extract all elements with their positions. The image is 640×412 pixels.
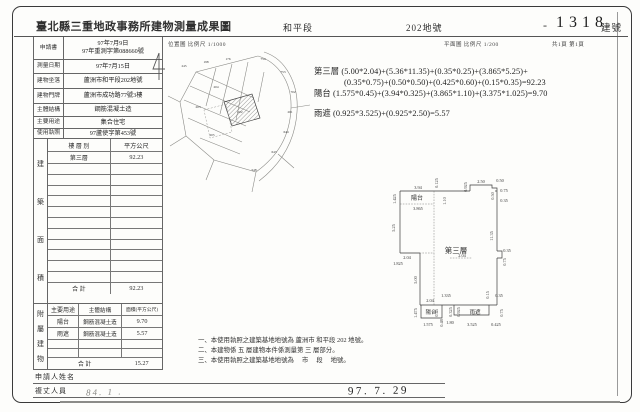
total-area: 92.23: [111, 283, 162, 294]
attached-section: 附屬 建物 主要用途 主體結構 面積(平方公尺) 陽台 鋼筋混凝土造 9.70 …: [34, 303, 162, 369]
handwritten-note: 84. 1 .: [86, 386, 123, 397]
dimension-label: 0.75: [499, 309, 504, 317]
parcel-number: 176: [225, 57, 230, 61]
form-row-location: 建物坐落 蘆洲市和平段202地號: [34, 73, 162, 88]
parcel-number: 702: [290, 90, 295, 94]
room-label: 雨遮: [469, 308, 481, 316]
row-label: 建物坐落: [34, 74, 64, 88]
empty-row: [48, 340, 162, 349]
area-table: 樓 層 別 平方公尺 第三層 92.23 合 計: [47, 139, 162, 303]
form-row-permit: 使用執照 97蘆使字第453號: [34, 128, 162, 138]
dimension-label: 1.335: [441, 293, 451, 298]
form-table: 申請書 97年7月9日 97年重測字第088660號 測量日期 97年7月15日…: [33, 37, 163, 370]
attached-total-row: 合 計 15.27: [48, 358, 162, 369]
parcel-number: 202: [237, 110, 242, 114]
empty-row: [48, 218, 162, 229]
empty-row: [48, 349, 162, 358]
parcel-number: 201: [287, 110, 292, 114]
structure-header: 主體結構: [79, 304, 122, 315]
site-map: 2451981767547537022016446435482042032022…: [166, 50, 318, 200]
page-title: 臺北縣三重地政事務所建物測量成果圖: [36, 18, 232, 34]
dimension-label: 0.50: [490, 192, 495, 200]
formula-canopy: 雨遮 (0.925*3.525)+(0.925*2.50)=5.57: [314, 108, 630, 119]
scanned-survey-document: 臺北縣三重地政事務所建物測量成果圖 和平段 202地號 - 1318 建號 位置…: [0, 0, 640, 412]
applicant-label: 申請人姓名: [35, 373, 75, 381]
note-line: 一、本使用執照之建築基地地號為 蘆洲市 和平段 202 地號。: [198, 336, 454, 346]
dimension-label: 0.75: [502, 258, 507, 266]
empty-row: [48, 261, 162, 272]
row-value: 鋼筋混凝土造: [64, 104, 162, 116]
attached-use: 雨遮: [48, 328, 79, 339]
building-area-section: 建築 面積 樓 層 別 平方公尺 第三層 92.23: [34, 138, 162, 303]
note-line: 二、本建物係 五 層建物本件係測量第 三 層部分。: [198, 346, 454, 356]
plan-scale: 平面圖 比例尺 1/200: [444, 40, 499, 48]
dimension-label: 0.425: [491, 322, 501, 327]
dimension-label: 0.75: [500, 188, 508, 193]
empty-row: [48, 250, 162, 261]
side-caption-building-area: 建築 面積: [34, 139, 47, 303]
application-date: 97年7月9日: [98, 40, 129, 48]
dimension-label: 0.45: [434, 309, 439, 317]
dimension-label: 0.125: [434, 178, 439, 188]
dimension-label: 0.925: [463, 182, 468, 192]
formula-balcony: 陽台 (1.575*0.45)+(3.94*0.325)+(3.865*1.10…: [314, 88, 630, 99]
attached-structure: 鋼筋混凝土造: [79, 316, 122, 327]
note-line: 三、本使用執照之建築基地地號為 市 段 地號。: [198, 356, 454, 366]
form-row-address: 建物門牌 蘆洲市成功路77號3樓: [34, 88, 162, 103]
notes: 一、本使用執照之建築基地地號為 蘆洲市 和平段 202 地號。 二、本建物係 五…: [198, 336, 454, 366]
dimension-label: 3.865: [413, 206, 423, 211]
form-row-application: 申請書 97年7月9日 97年重測字第088660號: [34, 37, 162, 59]
empty-row: [48, 196, 162, 207]
form-row-survey-date: 測量日期 97年7月15日: [34, 59, 162, 73]
surveyor-label: 複丈人員: [35, 387, 67, 395]
row-value: 97蘆使字第453號: [64, 129, 162, 138]
row-label: 主要用途: [34, 117, 64, 128]
building-number-label: 建號: [601, 20, 622, 34]
dimension-label: 2.50: [477, 179, 485, 184]
empty-row: [48, 229, 162, 240]
row-value: 蘆洲市成功路77號3樓: [64, 89, 162, 103]
dimension-label: 0.35: [495, 293, 503, 298]
row-value: 集合住宅: [64, 117, 162, 128]
empty-row: [48, 175, 162, 186]
main-outline: [420, 185, 502, 305]
formula-floor-line2: (0.35*0.75)+(0.50*0.50)+(0.425*0.60)+(0.…: [314, 77, 630, 88]
empty-row: [48, 240, 162, 251]
location-map-scale: 位置圖 比例尺 1/1000: [168, 40, 226, 48]
parcel-number: 204: [213, 85, 218, 89]
area-column-header: 平方公尺: [111, 139, 162, 151]
area-header-row: 樓 層 別 平方公尺: [48, 139, 162, 152]
row-label: 申請書: [34, 37, 64, 59]
parcel-number: 754: [260, 57, 265, 61]
attached-structure: 鋼筋混凝土造: [79, 328, 122, 339]
page-count: 共1頁 第1頁: [552, 40, 584, 48]
dimension-label: 1.80: [446, 320, 454, 325]
attached-row-canopy: 雨遮 鋼筋混凝土造 5.57: [48, 328, 162, 340]
building-number-dash: -: [543, 18, 547, 33]
floor-column-header: 樓 層 別: [48, 139, 111, 151]
row-label: 測量日期: [34, 60, 64, 73]
empty-row: [48, 164, 162, 175]
attached-area: 5.57: [122, 328, 162, 339]
floor-area: 92.23: [111, 152, 162, 163]
dimension-label: 0.35: [500, 198, 508, 203]
attached-total-label: 合 計: [48, 358, 121, 369]
form-row-structure: 主體結構 鋼筋混凝土造: [34, 103, 162, 116]
dimension-label: 3.525: [467, 322, 477, 327]
application-number: 97年重測字第088660號: [82, 48, 144, 56]
row-value: 蘆洲市和平段202地號: [64, 74, 162, 88]
row-label: 主體結構: [34, 104, 64, 116]
dimension-label: 2.04: [458, 253, 466, 258]
dimension-label: 3.94: [414, 185, 422, 190]
room-label: 陽台: [411, 194, 423, 202]
floor-plan: 3.941.425陽台3.8655.250.1251.100.9252.500.…: [390, 168, 520, 340]
dimension-label: 0.15: [485, 291, 490, 299]
dimension-label: 5.25: [391, 224, 396, 232]
empty-row: [48, 186, 162, 197]
floor-name: 第三層: [48, 152, 111, 163]
attached-area: 9.70: [122, 316, 162, 327]
row-value: 97年7月15日: [64, 60, 162, 73]
date-stamp: 97. 7. 29: [348, 384, 409, 397]
attached-total: 15.27: [121, 358, 162, 369]
use-header: 主要用途: [48, 304, 79, 315]
applicant-row: 申請人姓名: [33, 369, 445, 384]
dimension-label: 1.475: [413, 308, 418, 318]
dimension-label: 1.10: [442, 197, 447, 205]
dimension-label: 11.35: [489, 231, 494, 241]
parcel-number: 198: [203, 60, 208, 64]
attached-row-balcony: 陽台 鋼筋混凝土造 9.70: [48, 316, 162, 328]
page-bottom-shadow: [60, 401, 620, 403]
floor-row: 第三層 92.23: [48, 152, 162, 164]
dimension-label: 0.48: [439, 319, 444, 327]
parcel-number: 643: [271, 150, 276, 154]
parcel-number: 203: [195, 105, 200, 109]
dimension-label: 0.35: [503, 248, 511, 253]
attached-header-row: 主要用途 主體結構 面積(平方公尺): [48, 304, 162, 316]
row-value: 97年7月9日 97年重測字第088660號: [64, 37, 162, 59]
attached-use: 陽台: [48, 316, 79, 327]
parcel-number: 753: [280, 70, 285, 74]
area-formulas: 第三層 (5.00*2.04)+(5.36*11.35)+(0.35*0.25)…: [314, 66, 630, 119]
dimension-label: 2.04: [403, 255, 411, 260]
dimension-label: 0.50: [496, 178, 504, 183]
parcel-number: 245: [181, 64, 186, 68]
parcel-number: 202地號: [406, 21, 443, 34]
side-caption-attached: 附屬 建物: [34, 304, 47, 369]
attached-area-header: 面積(平方公尺): [122, 304, 162, 315]
dimension-label: 1.425: [392, 194, 397, 204]
form-row-use: 主要用途 集合住宅: [34, 116, 162, 128]
dimension-label: 0.325: [448, 307, 453, 317]
street-line: [259, 52, 297, 181]
parcel-number: 548: [251, 168, 256, 172]
area-total-row: 合 計 92.23: [48, 283, 162, 294]
section-name: 和平段: [283, 21, 313, 34]
attached-table: 主要用途 主體結構 面積(平方公尺) 陽台 鋼筋混凝土造 9.70 雨遮 鋼筋混…: [47, 304, 162, 369]
dimension-label: 1.575: [423, 322, 433, 327]
row-label: 建物門牌: [34, 89, 64, 103]
parcel-number: 205: [209, 133, 214, 137]
dimension-label: 5.00: [413, 276, 418, 284]
total-label: 合 計: [48, 283, 111, 294]
dimension-label: 1.825: [393, 261, 403, 266]
street-line: [256, 56, 291, 172]
dimension-label: 2.04: [426, 298, 434, 303]
formula-floor-line1: 第三層 (5.00*2.04)+(5.36*11.35)+(0.35*0.25)…: [314, 66, 630, 77]
dimension-label: 0.925: [456, 307, 461, 317]
parcel-number: 644: [283, 130, 288, 134]
row-label: 使用執照: [34, 129, 64, 138]
empty-row: [48, 207, 162, 218]
empty-row: [48, 272, 162, 283]
